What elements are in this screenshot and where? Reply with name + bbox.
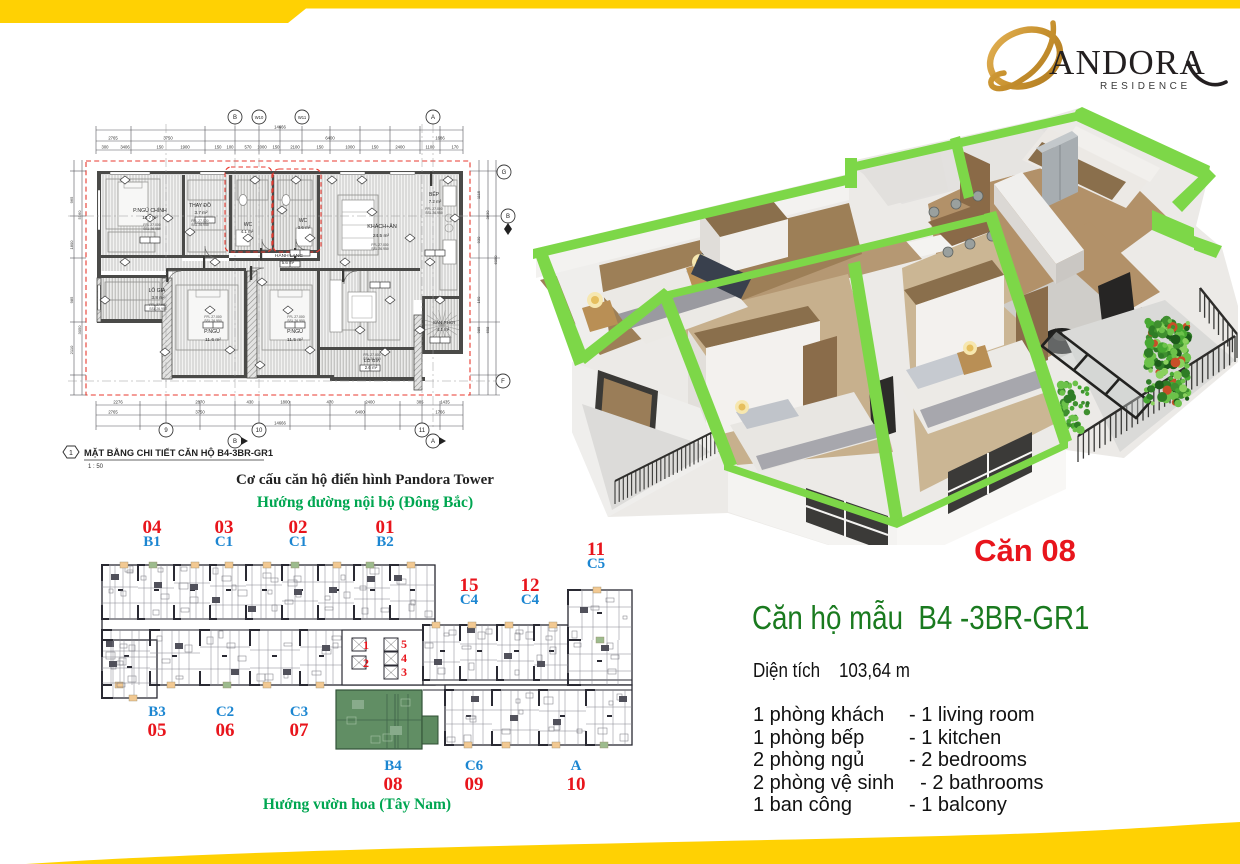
svg-text:3.6 m²: 3.6 m² <box>298 225 311 230</box>
svg-text:A: A <box>431 439 435 445</box>
svg-text:2400: 2400 <box>365 400 375 405</box>
svg-text:F: F <box>501 379 505 385</box>
svg-text:P.NGỦ: P.NGỦ <box>287 328 303 335</box>
svg-text:SÂN PHƠI: SÂN PHƠI <box>433 319 455 325</box>
svg-text:W10: W10 <box>255 115 264 120</box>
svg-text:WC: WC <box>299 218 308 224</box>
svg-text:HÀNH LANG: HÀNH LANG <box>275 252 303 259</box>
svg-text:2765: 2765 <box>108 136 118 141</box>
svg-text:4.1 m²: 4.1 m² <box>241 229 254 234</box>
svg-text:1800: 1800 <box>280 400 290 405</box>
svg-text:RESIDENCE: RESIDENCE <box>1100 81 1191 92</box>
svg-text:SSL 26.950: SSL 26.950 <box>149 307 167 311</box>
svg-text:WC: WC <box>244 222 253 228</box>
svg-text:985: 985 <box>476 326 481 333</box>
svg-text:6400: 6400 <box>325 136 335 141</box>
svg-text:11: 11 <box>419 428 426 434</box>
svg-text:470: 470 <box>327 400 335 405</box>
svg-text:1: 1 <box>363 638 369 652</box>
svg-text:13.7 m²: 13.7 m² <box>142 215 158 220</box>
svg-text:430: 430 <box>247 400 255 405</box>
svg-text:SSL 26.950: SSL 26.950 <box>371 247 389 251</box>
svg-text:6400: 6400 <box>355 410 365 415</box>
svg-text:1000: 1000 <box>345 145 355 150</box>
svg-text:3750: 3750 <box>163 136 173 141</box>
svg-text:LÔ GIA: LÔ GIA <box>149 287 166 294</box>
svg-text:150: 150 <box>215 145 223 150</box>
svg-text:698: 698 <box>485 326 490 333</box>
svg-text:150: 150 <box>317 145 325 150</box>
svg-text:P.NGỦ: P.NGỦ <box>204 328 220 335</box>
svg-text:3.8 m²: 3.8 m² <box>151 295 164 300</box>
svg-text:2400: 2400 <box>395 145 405 150</box>
svg-text:SSL 26.950: SSL 26.950 <box>425 211 443 215</box>
svg-text:1800: 1800 <box>69 240 74 250</box>
svg-text:1686: 1686 <box>435 136 445 141</box>
svg-text:G: G <box>502 170 507 176</box>
svg-text:2870: 2870 <box>195 400 205 405</box>
svg-text:5.6 m²: 5.6 m² <box>282 260 295 265</box>
svg-text:B: B <box>233 115 237 121</box>
svg-text:2110: 2110 <box>69 345 74 354</box>
svg-text:3406: 3406 <box>120 145 130 150</box>
svg-text:THAY ĐỒ: THAY ĐỒ <box>189 202 211 209</box>
svg-text:1766: 1766 <box>435 410 445 415</box>
svg-text:1: 1 <box>69 450 73 457</box>
svg-text:P.NGỦ CHÍNH: P.NGỦ CHÍNH <box>133 207 167 214</box>
svg-text:1435: 1435 <box>440 400 450 405</box>
svg-text:11.5 m²: 11.5 m² <box>287 337 303 343</box>
svg-text:W11: W11 <box>298 115 307 120</box>
svg-text:A: A <box>431 115 435 121</box>
svg-text:5160: 5160 <box>77 210 82 220</box>
svg-text:965: 965 <box>69 196 74 203</box>
svg-text:2: 2 <box>363 656 369 670</box>
svg-text:KHÁCH+ĂN: KHÁCH+ĂN <box>367 223 397 230</box>
svg-text:SSL 26.950: SSL 26.950 <box>363 357 381 361</box>
svg-text:6050: 6050 <box>493 255 498 265</box>
svg-text:150: 150 <box>476 296 481 303</box>
svg-text:MẶT BẰNG CHI TIẾT CĂN HỘ B4-3B: MẶT BẰNG CHI TIẾT CĂN HỘ B4-3BR-GR1 <box>84 447 273 458</box>
svg-text:10: 10 <box>256 428 263 434</box>
svg-text:3830: 3830 <box>485 210 490 220</box>
svg-text:2276: 2276 <box>113 400 123 405</box>
svg-text:1 : 50: 1 : 50 <box>88 464 104 470</box>
svg-text:BẾP: BẾP <box>429 191 440 198</box>
svg-text:1900: 1900 <box>180 145 190 150</box>
svg-text:4.1 m²: 4.1 m² <box>437 327 450 332</box>
svg-text:SSL 26.950: SSL 26.950 <box>287 319 305 323</box>
svg-text:14666: 14666 <box>274 125 286 130</box>
svg-text:3750: 3750 <box>195 410 205 415</box>
svg-text:930: 930 <box>476 236 481 243</box>
svg-text:150: 150 <box>157 145 165 150</box>
svg-text:5: 5 <box>401 637 407 651</box>
svg-text:2765: 2765 <box>108 410 118 415</box>
svg-text:4: 4 <box>401 651 407 665</box>
svg-text:7.2 m²: 7.2 m² <box>429 199 442 204</box>
svg-text:2.6 m²: 2.6 m² <box>365 365 378 370</box>
svg-text:2100: 2100 <box>290 145 300 150</box>
svg-text:150: 150 <box>273 145 281 150</box>
svg-text:B: B <box>506 214 510 220</box>
svg-text:3: 3 <box>401 665 407 679</box>
svg-text:SSL 26.950: SSL 26.950 <box>191 223 209 227</box>
svg-text:385: 385 <box>417 400 425 405</box>
svg-text:24.5 m²: 24.5 m² <box>373 233 390 239</box>
svg-text:14666: 14666 <box>274 421 286 426</box>
svg-text:SSL 26.950: SSL 26.950 <box>143 227 161 231</box>
svg-text:100: 100 <box>227 145 235 150</box>
svg-text:11.6 m²: 11.6 m² <box>205 337 221 343</box>
svg-text:1100: 1100 <box>425 145 435 150</box>
svg-text:300: 300 <box>102 145 110 150</box>
svg-text:170: 170 <box>452 145 460 150</box>
svg-text:SSL 26.950: SSL 26.950 <box>204 319 222 323</box>
svg-text:150: 150 <box>372 145 380 150</box>
svg-text:3.7 m²: 3.7 m² <box>194 210 207 215</box>
svg-text:ANDORA: ANDORA <box>1049 43 1206 82</box>
svg-text:570: 570 <box>245 145 253 150</box>
svg-text:3050: 3050 <box>77 325 82 335</box>
svg-text:1115: 1115 <box>476 190 481 199</box>
svg-text:B: B <box>233 439 237 445</box>
svg-text:985: 985 <box>69 296 74 303</box>
